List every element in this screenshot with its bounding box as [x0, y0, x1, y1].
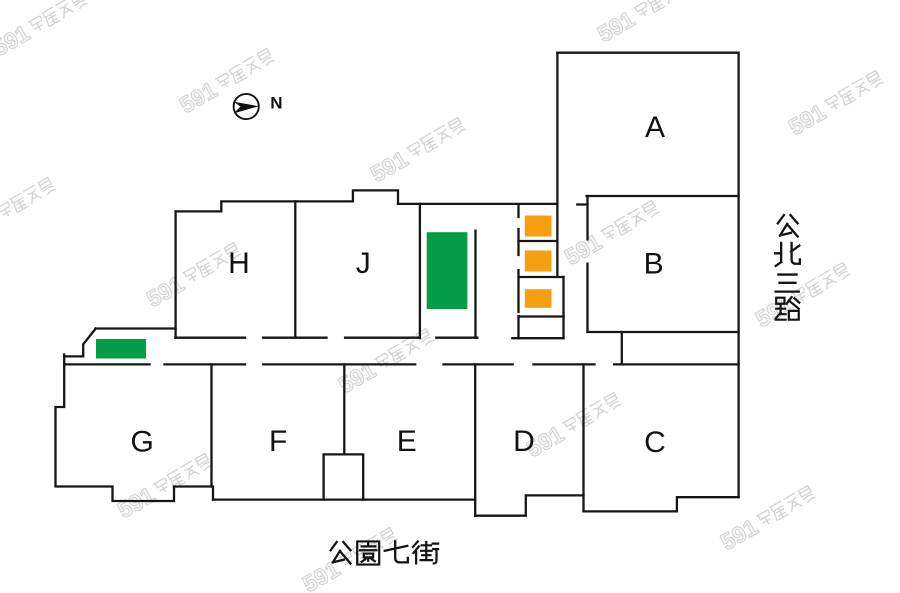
svg-text:B: B — [644, 248, 664, 281]
svg-text:F: F — [269, 425, 287, 458]
svg-text:H: H — [228, 247, 250, 280]
svg-text:N: N — [270, 93, 282, 112]
svg-text:E: E — [397, 425, 417, 458]
svg-text:C: C — [644, 426, 666, 459]
svg-text:J: J — [356, 247, 371, 280]
svg-text:D: D — [513, 425, 535, 458]
svg-text:G: G — [131, 426, 154, 459]
svg-text:A: A — [645, 111, 665, 144]
